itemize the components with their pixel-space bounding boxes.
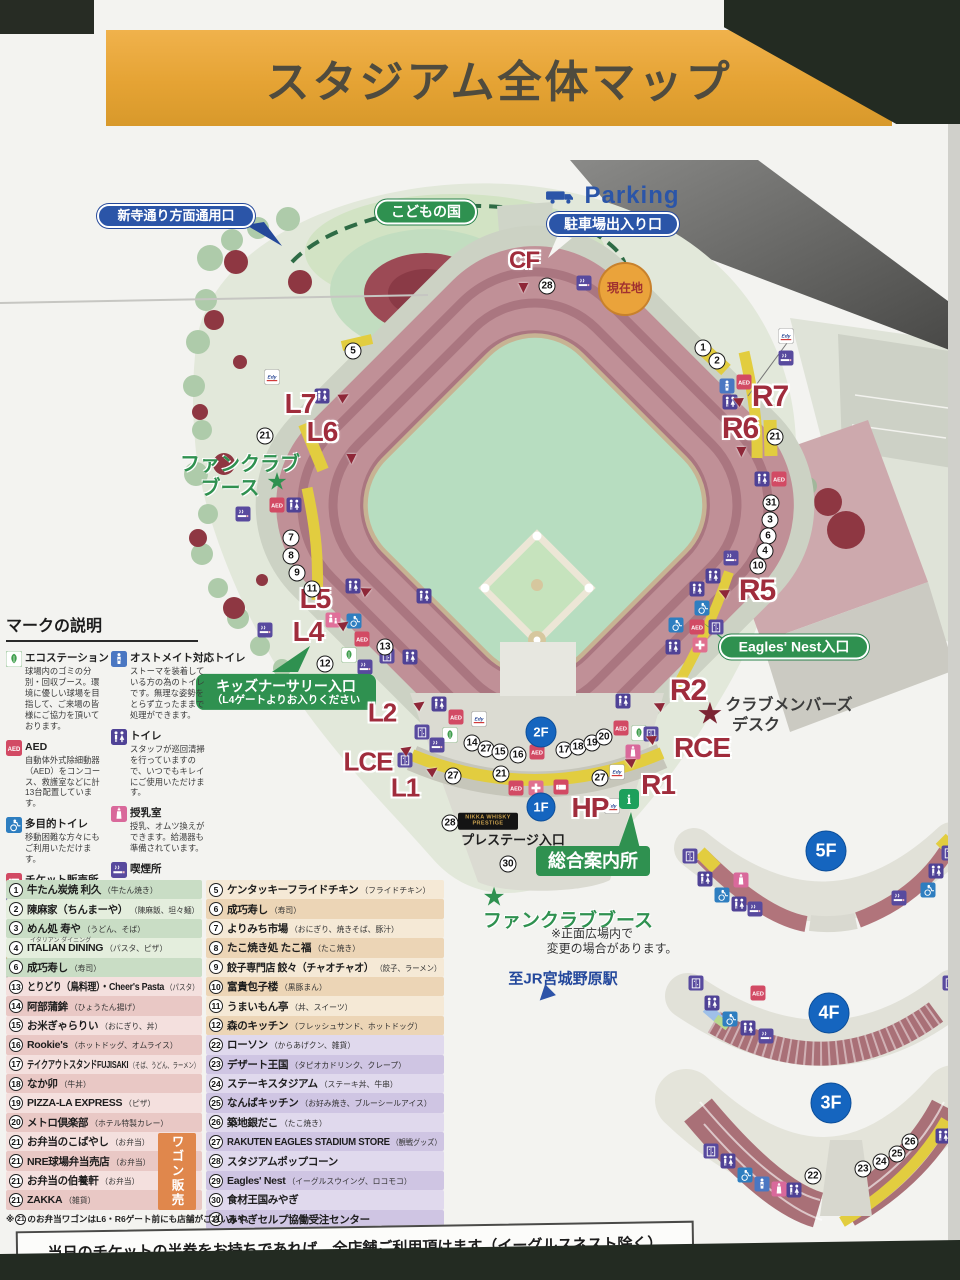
svg-text:AED: AED [356, 638, 368, 644]
legend-item: 喫煙所 [111, 861, 210, 878]
shop-name: 森のキッチン [227, 1018, 288, 1033]
shop-category: 寿司 [70, 963, 101, 974]
map-number-27: 27 [592, 770, 609, 787]
aed-icon: AED [737, 375, 752, 390]
shop-category: パスタ [166, 982, 199, 993]
legend-item: 多目的トイレ移動困難な方々にもご利用いただけます。 [6, 816, 105, 865]
map-number-15: 15 [492, 744, 509, 761]
shop-list-item: 22 ローソンからあげクン、雑貨 [206, 1035, 444, 1054]
gate-arrow-L7: ▶ [336, 387, 353, 406]
toilet-icon [732, 897, 747, 912]
parking-label: Parking [584, 182, 679, 210]
shop-list-item: 10 富貴包子楼黒豚まん [206, 977, 444, 996]
shop-number-badge: 7 [209, 921, 223, 935]
svg-text:AED: AED [450, 716, 462, 722]
shop-number-badge: 2 [9, 902, 23, 916]
shop-list-item: 13 とりどり（鳥料理）・Cheer's Pastaパスタ [6, 977, 202, 996]
shop-list-item: 4 イタリアン ダイニング ITALIAN DININGパスタ、ピザ [6, 938, 202, 957]
eco-station-icon [342, 648, 357, 663]
toilet-icon [666, 640, 681, 655]
floor-badge-4F: 4F [809, 993, 850, 1034]
map-number-28: 28 [442, 815, 459, 832]
smoking-area-icon [577, 276, 592, 291]
toilet-icon [741, 1021, 756, 1036]
shop-category: 観戦グッズ [392, 1137, 442, 1148]
nursing-room-icon [111, 806, 127, 822]
shop-category: 雑貨 [64, 1195, 95, 1206]
shop-number-badge: 4 [9, 941, 23, 955]
shop-name: Eagles' Nest [227, 1175, 285, 1187]
shop-category: おにぎり、焼きそば、豚汁 [290, 924, 399, 935]
shop-number-badge: 12 [209, 1018, 223, 1032]
nursing-room-icon [734, 873, 749, 888]
map-number-24: 24 [873, 1154, 890, 1171]
footnote-number-badge: 21 [15, 1214, 26, 1225]
club-members-desk-line2: デスク [732, 711, 780, 735]
shop-number-badge: 21 [9, 1154, 23, 1168]
shop-name: 阿部蒲鉾 [27, 999, 68, 1014]
gate-label-R5: R5 [739, 574, 775, 608]
shop-name: なか卯 [27, 1076, 58, 1091]
ostomate-toilet-icon [111, 651, 127, 667]
shop-category: 牛たん焼き [103, 885, 158, 896]
shop-name: テイクアウトスタンドFUJISAKI [27, 1057, 128, 1072]
svg-text:AED: AED [691, 626, 703, 632]
gate-label-HP: HP [572, 792, 609, 824]
shop-name: 陳麻家（ちんまーや） [27, 902, 128, 917]
shop-category: 黒豚まん [280, 982, 327, 993]
shop-number-badge: 15 [9, 1018, 23, 1032]
shop-name: PIZZA-LA EXPRESS [27, 1097, 122, 1109]
nikka-whisky-prestige-sign: NIKKA WHISKYPRESTIGE [458, 813, 518, 830]
shop-number-badge: 3 [9, 921, 23, 935]
svg-text:Edy: Edy [782, 334, 791, 340]
shop-list-right: 5 ケンタッキーフライドチキンフライドチキン 6 成巧寿し寿司 7 よりみち市場… [206, 880, 444, 1229]
svg-text:AED: AED [271, 504, 283, 510]
shop-category: 餃子、ラーメン [375, 963, 441, 974]
shop-category: 丼、スイーツ [290, 1002, 352, 1013]
shop-category: お好み焼き、ブルーシールアイス [300, 1098, 431, 1109]
shop-category: たこ焼き [280, 1118, 327, 1129]
map-number-30: 30 [500, 856, 517, 873]
smoking-area-icon [430, 738, 445, 753]
shop-name: なんばキッチン [227, 1095, 298, 1110]
floor-badge-2F: 2F [526, 717, 557, 748]
svg-text:Edy: Edy [608, 804, 617, 810]
shop-number-badge: 30 [209, 1193, 223, 1207]
shop-ruby: イタリアン ダイニング [30, 938, 91, 944]
shop-number-badge: 18 [9, 1077, 23, 1091]
shop-list-item: 20 メトロ倶楽部ホテル特製カレー [6, 1113, 202, 1132]
svg-text:AED: AED [752, 992, 764, 998]
shop-list-item: 30 食材王国みやぎ [206, 1190, 444, 1209]
shop-number-badge: 9 [209, 960, 223, 974]
elevator-icon [709, 620, 724, 635]
shop-category: パスタ、ピザ [105, 943, 167, 954]
shop-name: 成巧寿し [227, 902, 268, 917]
shop-category: フライドチキン [360, 885, 430, 896]
floor-badge-5F: 5F [806, 831, 847, 872]
shop-list-item: 23 デザート王国タピオカドリンク、クレープ [206, 1055, 444, 1074]
smoking-area-icon [779, 351, 794, 366]
gate-label-RCE: RCE [674, 732, 730, 764]
edy-charge-icon: Edy [779, 329, 794, 344]
shop-number-badge: 19 [9, 1096, 23, 1110]
smoking-area-icon [111, 862, 127, 878]
kodomonokuni-pill: こどもの国 [375, 200, 477, 225]
legend-item-desc: 移動困難な方々にもご利用いただけます。 [25, 832, 105, 865]
elevator-icon [415, 725, 430, 740]
accessible-toilet-icon [723, 1012, 738, 1027]
shop-number-badge: 21 [9, 1174, 23, 1188]
photo-background-top-left [0, 0, 94, 34]
accessible-toilet-icon [6, 817, 22, 833]
legend-item-name: 授乳室 [130, 805, 210, 821]
gate-arrow-R5: ▶ [715, 584, 731, 603]
smoking-area-icon [748, 902, 763, 917]
shop-list-item: 12 森のキッチンフレッシュサンド、ホットドッグ [206, 1016, 444, 1035]
shop-name: 築地銀だこ [227, 1115, 278, 1130]
map-number-7: 7 [283, 530, 300, 547]
gate-label-R2: R2 [670, 674, 706, 708]
map-number-3: 3 [762, 512, 779, 529]
shop-number-badge: 26 [209, 1115, 223, 1129]
parking-truck-icon [545, 187, 575, 206]
svg-text:AED: AED [531, 751, 543, 757]
shop-category: お弁当 [111, 1137, 150, 1148]
map-number-27: 27 [445, 768, 462, 785]
map-number-28: 28 [539, 278, 556, 295]
gate-arrow-L1: ▶ [424, 761, 441, 780]
front-plaza-note-line2: 変更の場合があります。 [547, 940, 678, 957]
shop-name: お弁当の伯養軒 [27, 1173, 98, 1188]
shop-name: Rookie's [27, 1039, 68, 1051]
wagon-footnote: ※21のお弁当ワゴンはL6・R6ゲート前にも店舗がございます。 [6, 1213, 254, 1225]
legend-item: 授乳室授乳、オムツ換えができます。給湯器も準備されています。 [111, 805, 210, 854]
shop-list-item: 6 成巧寿し寿司 [206, 899, 444, 918]
legend-item-name: AED [25, 739, 105, 755]
map-number-16: 16 [510, 747, 527, 764]
shop-name: NRE球場弁当売店 [27, 1154, 109, 1169]
aed-icon: AED [690, 620, 705, 635]
information-icon: i [619, 789, 639, 809]
map-number-21: 21 [493, 766, 510, 783]
shop-list-item: 1 牛たん炭焼 利久牛たん焼き [6, 880, 202, 899]
legend-item-desc: ストーマを装着している方の為のトイレです。無理な姿勢をとらず立ったままで処理がで… [130, 666, 210, 721]
accessible-toilet-icon [715, 888, 730, 903]
shop-number-badge: 21 [9, 1135, 23, 1149]
gate-label-L2: L2 [368, 698, 396, 729]
map-number-11: 11 [304, 581, 321, 598]
shop-category: お弁当 [100, 1176, 139, 1187]
shop-name: 食材王国みやぎ [227, 1192, 298, 1207]
gate-label-L1: L1 [391, 773, 419, 804]
toilet-icon [616, 694, 631, 709]
shop-number-badge: 8 [209, 941, 223, 955]
shop-list-item: 28 スタジアムポップコーン [206, 1151, 444, 1170]
legend-item-name: オストメイト対応トイレ [130, 650, 246, 666]
svg-text:AED: AED [773, 478, 785, 484]
toilet-icon [705, 996, 720, 1011]
toilet-icon [417, 589, 432, 604]
aed-icon: AED [6, 740, 22, 756]
map-number-2: 2 [709, 353, 726, 370]
shop-list-item: 17 テイクアウトスタンドFUJISAKIそば、うどん、ラーメン [6, 1055, 202, 1074]
gate-arrow-CF: ▶ [516, 283, 532, 293]
gate-arrow-L5: ▶ [359, 581, 375, 600]
toilet-icon [432, 697, 447, 712]
edy-charge-icon: Edy [265, 370, 280, 385]
legend-item: オストメイト対応トイレストーマを装着している方の為のトイレです。無理な姿勢をとら… [111, 650, 210, 721]
toilet-icon [690, 582, 705, 597]
shop-list-item: 11 うまいもん亭丼、スイーツ [206, 996, 444, 1015]
eco-station-icon [443, 728, 458, 743]
map-number-20: 20 [596, 729, 613, 746]
map-number-21: 21 [767, 429, 784, 446]
aed-icon: AED [772, 472, 787, 487]
gate-arrow-R2: ▶ [650, 697, 666, 716]
legend-item-name: 喫煙所 [130, 861, 162, 877]
ticket-sales-icon [554, 780, 569, 795]
accessible-toilet-icon [669, 618, 684, 633]
first-aid-icon [693, 638, 708, 653]
floor-badge-1F: 1F [527, 793, 556, 822]
shop-list-item: 5 ケンタッキーフライドチキンフライドチキン [206, 880, 444, 899]
page-title: スタジアム全体マップ [266, 46, 733, 110]
shop-category: ホテル特製カレー [90, 1118, 168, 1129]
shop-list-item: 8 たこ焼き処 たこ福たこ焼き [206, 938, 444, 957]
shop-name: うまいもん亭 [227, 999, 288, 1014]
shop-name: メトロ倶楽部 [27, 1115, 88, 1130]
shop-number-badge: 16 [9, 1038, 23, 1052]
ostomate-toilet-icon [755, 1177, 770, 1192]
smoking-area-icon [759, 1029, 774, 1044]
eco-station-icon [6, 651, 22, 667]
shop-number-badge: 24 [209, 1077, 223, 1091]
map-number-13: 13 [377, 639, 394, 656]
shop-name: たこ焼き処 たこ福 [227, 940, 311, 955]
smoking-area-icon [724, 551, 739, 566]
shop-number-badge: 28 [209, 1154, 223, 1168]
parking-gate-pill: 駐車場出入り口 [547, 212, 679, 236]
elevator-icon [704, 1144, 719, 1159]
shop-category: ひょうたん揚げ [70, 1002, 140, 1013]
gate-arrow-L2: ▶ [411, 695, 428, 714]
shop-list-item: 6 成巧寿し寿司 [6, 958, 202, 977]
shop-list-item: 27 RAKUTEN EAGLES STADIUM STORE観戦グッズ [206, 1132, 444, 1151]
gate-arrow-L6: ▶ [344, 454, 360, 464]
smoking-area-icon [258, 623, 273, 638]
shop-list-item: 19 PIZZA-LA EXPRESSピザ [6, 1093, 202, 1112]
shop-category: 陳麻飯、坦々麺 [130, 905, 199, 916]
legend-item-desc: 自動体外式除細動器（AED）をコンコース、救護室などに計13台配置しています。 [25, 755, 105, 810]
aed-icon: AED [614, 721, 629, 736]
toilet-icon [698, 872, 713, 887]
shop-category: からあげクン、雑貨 [270, 1040, 355, 1051]
legend-item-desc: スタッフが巡回清掃を行っていますので、いつでもキレイにご使用いただけます。 [130, 744, 210, 799]
shop-list-item: 15 お米ぎゃらりいおにぎり、丼 [6, 1016, 202, 1035]
shop-name: めん処 寿や [27, 921, 81, 936]
wagon-sales-label: ワゴン販売 [158, 1133, 196, 1210]
map-number-25: 25 [889, 1146, 906, 1163]
shop-number-badge: 11 [209, 999, 223, 1013]
legend-item: エコステーション球場内のゴミの分別・回収ブース。環境に優しい球場を目指して、ご来… [6, 650, 105, 732]
nursing-room-icon [772, 1182, 787, 1197]
shop-number-badge: 21 [9, 1193, 23, 1207]
shop-list-item: 2 陳麻家（ちんまーや）陳麻飯、坦々麺 [6, 899, 202, 918]
gate-label-R7: R7 [752, 380, 788, 414]
shop-number-badge: 25 [209, 1096, 223, 1110]
map-number-9: 9 [289, 565, 306, 582]
floor-badge-3F: 3F [811, 1083, 852, 1124]
legend-item-name: 多目的トイレ [25, 816, 105, 832]
shop-name: ローソン [227, 1037, 268, 1052]
toilet-icon [111, 729, 127, 745]
shop-category: ステーキ丼、牛串 [320, 1079, 398, 1090]
svg-text:i: i [627, 793, 632, 807]
shop-list-item: 24 ステーキスタジアムステーキ丼、牛串 [206, 1074, 444, 1093]
shop-name: 富貴包子楼 [227, 979, 278, 994]
toilet-icon [721, 1154, 736, 1169]
shop-number-badge: 13 [9, 980, 23, 994]
legend-item-name: トイレ [130, 728, 210, 744]
shop-list-item: 3 めん処 寿やうどん、そば [6, 919, 202, 938]
svg-text:Edy: Edy [475, 717, 484, 723]
map-number-26: 26 [902, 1134, 919, 1151]
accessible-toilet-icon [695, 601, 710, 616]
elevator-icon [689, 976, 704, 991]
shop-category: ピザ [124, 1098, 155, 1109]
shop-category: お弁当 [111, 1157, 150, 1168]
shop-number-badge: 29 [209, 1174, 223, 1188]
map-number-23: 23 [855, 1161, 872, 1178]
shop-name: スタジアムポップコーン [227, 1154, 338, 1169]
legend-item: AED AED自動体外式除細動器（AED）をコンコース、救護室などに計13台配置… [6, 739, 105, 810]
fanclub-booth-left-line2: ブース [201, 472, 260, 501]
map-number-8: 8 [283, 548, 300, 565]
elevator-icon [683, 849, 698, 864]
shop-name: 牛たん炭焼 利久 [27, 882, 101, 897]
svg-text:Edy: Edy [268, 375, 277, 381]
map-number-31: 31 [763, 495, 780, 512]
toilet-icon [315, 389, 330, 404]
shop-category: 牛丼 [60, 1079, 91, 1090]
shop-category: おにぎり、丼 [100, 1021, 162, 1032]
prestige-entrance-label: プレステージ入口 [461, 830, 565, 849]
shop-name: ZAKKA [27, 1194, 62, 1206]
map-number-21: 21 [257, 428, 274, 445]
shintera-gate-pill: 新寺通り方面通用口 [97, 204, 255, 228]
shop-name: 餃子専門店 餃々（チャオチャオ） [227, 960, 374, 975]
shop-list-item: 9 餃子専門店 餃々（チャオチャオ）餃子、ラーメン [206, 958, 444, 977]
information-center-box: 総合案内所 [536, 846, 650, 876]
shop-number-badge: 23 [209, 1057, 223, 1071]
fanclub-star-left: ★ [266, 468, 288, 497]
gate-label-CF: CF [509, 247, 539, 275]
smoking-area-icon [358, 660, 373, 675]
shop-list-item: 16 Rookie'sホットドッグ、オムライス [6, 1035, 202, 1054]
map-number-5: 5 [345, 343, 362, 360]
toilet-icon [706, 569, 721, 584]
shop-list-item: 25 なんばキッチンお好み焼き、ブルーシールアイス [206, 1093, 444, 1112]
shop-category: うどん、そば [83, 924, 145, 935]
gate-label-R1: R1 [641, 769, 675, 801]
shop-category: ホットドッグ、オムライス [70, 1040, 178, 1051]
gate-label-L6: L6 [307, 416, 338, 448]
aed-icon: AED [449, 710, 464, 725]
shop-name: お米ぎゃらりい [27, 1018, 98, 1033]
shop-category: フレッシュサンド、ホットドッグ [290, 1021, 422, 1032]
toilet-icon [929, 864, 944, 879]
shop-category: 寿司 [270, 905, 301, 916]
shop-name: よりみち市場 [227, 921, 288, 936]
fanclub-star-front: ★ [482, 882, 505, 913]
aed-icon: AED [270, 498, 285, 513]
shop-number-badge: 1 [9, 883, 23, 897]
shop-name: ケンタッキーフライドチキン [227, 882, 358, 897]
shop-number-badge: 5 [209, 883, 223, 897]
accessible-toilet-icon [921, 883, 936, 898]
toilet-icon [787, 1183, 802, 1198]
toilet-icon [287, 498, 302, 513]
shop-number-badge: 10 [209, 980, 223, 994]
gate-label-L4: L4 [293, 616, 324, 648]
toilet-icon [346, 579, 361, 594]
toilet-icon [755, 472, 770, 487]
legend-item-desc: 球場内のゴミの分別・回収ブース。環境に優しい球場を目指して、ご来場の皆様にご協力… [25, 666, 105, 732]
shop-name: RAKUTEN EAGLES STADIUM STORE [227, 1136, 390, 1148]
eagles-nest-entrance-pill: Eagles' Nest入口 [719, 635, 869, 660]
gate-label-LCE: LCE [344, 747, 393, 778]
shop-list-item: 18 なか卯牛丼 [6, 1074, 202, 1093]
svg-text:AED: AED [738, 381, 750, 387]
shop-name: 成巧寿し [27, 960, 68, 975]
svg-text:Edy: Edy [613, 770, 622, 776]
shop-number-badge: 17 [9, 1057, 23, 1071]
gate-arrow-R6: ▶ [734, 447, 750, 457]
shop-name: ステーキスタジアム [227, 1076, 318, 1091]
svg-text:AED: AED [615, 727, 627, 733]
legend-item-name: エコステーション [25, 650, 109, 666]
shop-list-item: 29 Eagles' Nestイーグルスウイング、ロコモコ [206, 1171, 444, 1190]
gate-arrow-R1: ▶ [621, 753, 637, 772]
shop-name: デザート王国 [227, 1057, 288, 1072]
edy-charge-icon: Edy [472, 712, 487, 727]
map-number-12: 12 [317, 656, 334, 673]
shop-number-badge: 22 [209, 1038, 223, 1052]
shop-number-badge: 20 [9, 1115, 23, 1129]
shop-list-item: 7 よりみち市場おにぎり、焼きそば、豚汁 [206, 919, 444, 938]
legend-title: マークの説明 [6, 612, 198, 642]
smoking-area-icon [892, 891, 907, 906]
ostomate-toilet-icon [720, 379, 735, 394]
aed-icon: AED [509, 781, 524, 796]
map-number-10: 10 [750, 558, 767, 575]
shop-category: たこ焼き [313, 943, 360, 954]
shop-list-item: 26 築地銀だこたこ焼き [206, 1113, 444, 1132]
smoking-area-icon [236, 507, 251, 522]
shop-category: イーグルスウイング、ロコモコ [287, 1176, 411, 1187]
map-number-1: 1 [695, 340, 712, 357]
shop-list-item: 14 阿部蒲鉾ひょうたん揚げ [6, 996, 202, 1015]
shop-category: タピオカドリンク、クレープ [290, 1060, 406, 1071]
shop-number-badge: 6 [9, 960, 23, 974]
current-location-badge: 現在地 [598, 262, 652, 316]
toilet-icon [403, 650, 418, 665]
aed-icon: AED [751, 986, 766, 1001]
map-number-22: 22 [805, 1168, 822, 1185]
shop-number-badge: 14 [9, 999, 23, 1013]
